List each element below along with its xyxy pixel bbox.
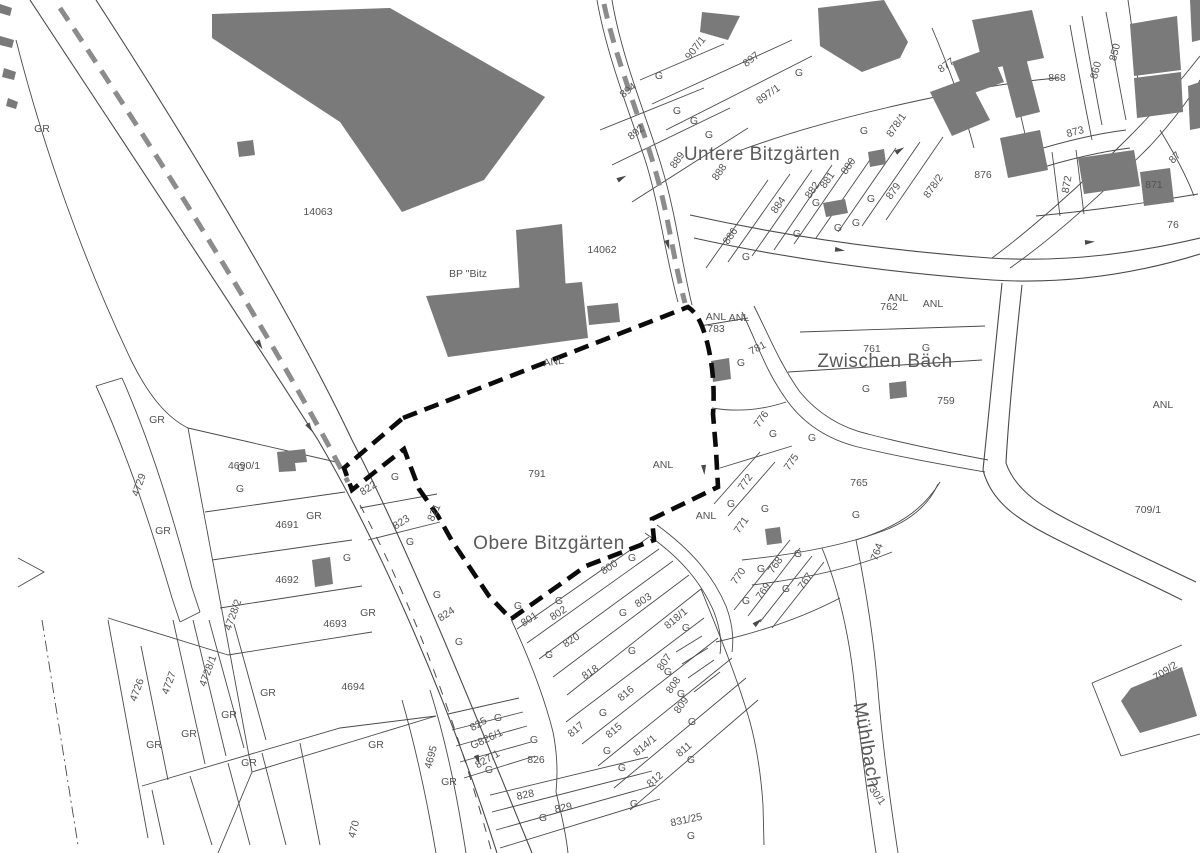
- label-709-1: 709/1: [1135, 504, 1161, 516]
- parcel-line: [209, 620, 244, 748]
- label-g: G: [737, 357, 745, 369]
- label-gr: GR: [149, 414, 165, 426]
- label-g: G: [862, 383, 870, 395]
- label-4728-2: 4728/2: [222, 598, 244, 632]
- road-edge: [1006, 285, 1196, 582]
- label-g: G: [812, 197, 820, 209]
- survey-arrow: [753, 617, 764, 627]
- label-771: 771: [732, 515, 752, 536]
- parcel-line: [96, 386, 180, 622]
- label-880: 880: [839, 156, 859, 177]
- label-g: G: [808, 432, 816, 444]
- label-g: G: [757, 563, 765, 575]
- label-gr: GR: [34, 123, 50, 135]
- label-4693: 4693: [323, 618, 347, 630]
- label-g: G: [628, 552, 636, 564]
- label-anl: ANL: [543, 355, 565, 370]
- parcel-line-dashed: [42, 620, 78, 845]
- parcel-line: [1070, 25, 1092, 140]
- building: [765, 527, 782, 545]
- label-g: G: [343, 552, 351, 564]
- building: [1188, 82, 1200, 130]
- parcel-line: [742, 484, 938, 560]
- cadastral-map: BP "Bitz GR14063140: [0, 0, 1200, 853]
- survey-arrow: [701, 465, 707, 475]
- label-783: 783: [707, 323, 725, 335]
- label-76: 76: [1167, 219, 1179, 231]
- label-772: 772: [736, 472, 756, 493]
- label-820: 820: [561, 631, 582, 651]
- parcel-line: [657, 525, 733, 652]
- parcel-line: [452, 712, 523, 730]
- parcel-line: [1121, 734, 1200, 756]
- parcel-line: [676, 636, 702, 652]
- labels-under-buildings: BP "Bitz: [449, 268, 487, 280]
- label-g: G: [539, 812, 547, 824]
- building: [823, 199, 848, 217]
- label-anl: ANL: [706, 311, 727, 323]
- label-gr: GR: [221, 709, 237, 721]
- label-894: 894: [618, 80, 639, 100]
- label-g: G: [673, 105, 681, 117]
- parcel-line: [180, 612, 200, 622]
- building: [1130, 16, 1181, 76]
- label-817: 817: [566, 719, 587, 740]
- parcel-line: [141, 646, 168, 780]
- label-878-1: 878/1: [884, 111, 909, 140]
- parcel-line: [193, 620, 226, 756]
- label-g: G: [514, 600, 522, 612]
- label-g: G: [687, 830, 695, 842]
- label-g: G: [761, 503, 769, 515]
- label-g: G: [618, 762, 626, 774]
- building: [889, 381, 907, 399]
- survey-arrow: [835, 247, 846, 253]
- label-14062: 14062: [587, 244, 616, 256]
- parcel-line: [772, 562, 824, 628]
- label-762: 762: [880, 301, 898, 313]
- label-759: 759: [937, 395, 955, 407]
- label-4727: 4727: [160, 670, 179, 696]
- parcel-line: [205, 492, 345, 512]
- label-907-1: 907/1: [683, 34, 709, 62]
- building: [818, 0, 908, 72]
- label-g: G: [619, 607, 627, 619]
- label-768: 768: [766, 555, 786, 576]
- label-850: 850: [1107, 42, 1123, 62]
- survey-arrow: [616, 173, 627, 182]
- label-g: G: [852, 509, 860, 521]
- label-4728-1: 4728/1: [197, 654, 219, 688]
- label-gr: GR: [241, 757, 257, 769]
- label-4692: 4692: [275, 574, 299, 586]
- parcel-line: [448, 698, 519, 714]
- parcel-line: [701, 589, 764, 845]
- building: [868, 149, 886, 167]
- label-g: G: [727, 498, 735, 510]
- parcel-line: [234, 624, 266, 740]
- label-g: G: [682, 622, 690, 634]
- label-g: G: [793, 228, 801, 240]
- label-gr: GR: [181, 728, 197, 740]
- label-g: G: [545, 649, 553, 661]
- label-767: 767: [796, 571, 816, 592]
- building: [212, 8, 545, 212]
- label-g: G: [852, 217, 860, 229]
- label-anl: ANL: [1153, 399, 1174, 411]
- label-gr: GR: [368, 739, 384, 751]
- parcel-line: [228, 632, 372, 655]
- label-gr: GR: [441, 776, 457, 788]
- building: [1000, 130, 1048, 178]
- label-g: G: [630, 798, 638, 810]
- parcel-line: [300, 743, 320, 845]
- label-anl: ANL: [696, 510, 717, 522]
- label-g: G: [705, 129, 713, 141]
- parcel-line: [694, 672, 720, 692]
- building: [587, 303, 620, 325]
- road-edge: [983, 283, 1182, 600]
- label-g: G: [455, 636, 463, 648]
- building-edge-mark: [6, 98, 18, 109]
- parcel-line: [188, 428, 252, 772]
- label-gr: GR: [360, 607, 376, 619]
- survey-arrow: [894, 145, 905, 155]
- parcel-line: [142, 716, 436, 786]
- label-877: 877: [936, 56, 957, 76]
- label-g: G: [742, 595, 750, 607]
- label-821: 821: [425, 502, 443, 523]
- building-edge-mark: [2, 68, 16, 80]
- label-800: 800: [599, 558, 620, 578]
- parcel-line: [582, 638, 718, 744]
- label-gr: GR: [306, 510, 322, 522]
- label-g: G: [742, 251, 750, 263]
- parcel-line: [152, 790, 164, 845]
- label-g: G: [391, 471, 399, 483]
- label-892: 892: [626, 122, 647, 142]
- parcel-line: [600, 88, 704, 130]
- parcel-line: [712, 402, 786, 410]
- parcel-line: [632, 128, 748, 202]
- label-470: 470: [346, 819, 362, 839]
- parcel-line: [212, 540, 352, 560]
- label-g: G: [794, 548, 802, 560]
- label-776: 776: [752, 409, 772, 430]
- label-g: G: [406, 536, 414, 548]
- label-g: G: [628, 645, 636, 657]
- label-775: 775: [782, 452, 802, 473]
- label-825: 825: [468, 715, 489, 734]
- label-untere-bitzgaerten: Untere Bitzgärten: [684, 144, 840, 165]
- parcel-line: [728, 174, 790, 262]
- label-anl: ANL: [653, 459, 674, 471]
- label-4695: 4695: [422, 744, 440, 770]
- label-814-1: 814/1: [631, 733, 659, 759]
- parcel-line: [16, 40, 188, 428]
- parcel-line: [228, 763, 250, 845]
- label-14063: 14063: [303, 206, 332, 218]
- label-g: G: [485, 764, 493, 776]
- label-g: G: [664, 666, 672, 678]
- label-g: G: [237, 462, 245, 474]
- parcel-line: [666, 56, 812, 130]
- label-g: G: [655, 70, 663, 82]
- building: [312, 557, 333, 587]
- label-zwischen-baech: Zwischen Bäch: [817, 351, 952, 372]
- parcel-line: [1106, 12, 1126, 120]
- label-822: 822: [358, 479, 379, 499]
- label-muehlbach: Mühlbach: [849, 701, 885, 790]
- building-edge-mark: [0, 4, 12, 16]
- label-g: G: [769, 428, 777, 440]
- building: [1190, 0, 1200, 42]
- cadastral-map-page: BP "Bitz GR14063140: [0, 0, 1200, 853]
- building: [277, 449, 307, 472]
- label-anl: ANL: [729, 312, 750, 324]
- parcel-line: [800, 326, 985, 332]
- label-769: 769: [754, 581, 774, 602]
- label-g: G: [834, 222, 842, 234]
- label-g: G: [433, 589, 441, 601]
- building: [516, 224, 566, 298]
- label-gr: GR: [155, 525, 171, 537]
- parcel-line: [190, 776, 212, 845]
- wall-dash-line: [604, 4, 685, 303]
- building: [1134, 72, 1183, 118]
- building: [237, 140, 255, 157]
- building: [700, 12, 740, 40]
- label-897: 897: [741, 49, 762, 69]
- label-815: 815: [604, 720, 625, 741]
- label-826: 826: [527, 754, 545, 766]
- label-87: 87: [1167, 149, 1184, 166]
- label-g: G: [690, 115, 698, 127]
- building: [426, 282, 588, 357]
- building: [1078, 150, 1140, 194]
- label-770: 770: [729, 566, 749, 587]
- label-g: G: [494, 712, 502, 724]
- label-878-2: 878/2: [921, 172, 946, 201]
- label-809: 809: [672, 695, 692, 716]
- parcel-line: [262, 753, 286, 845]
- label-gr: GR: [146, 739, 162, 751]
- parcel-line: [402, 700, 436, 853]
- label-868: 868: [1048, 72, 1066, 84]
- label-829: 829: [554, 800, 574, 815]
- label-g: G: [530, 734, 538, 746]
- label-803: 803: [633, 591, 654, 611]
- label-4726: 4726: [128, 677, 147, 703]
- label-765: 765: [850, 477, 868, 489]
- label-816: 816: [616, 683, 637, 704]
- label-781: 781: [747, 339, 768, 358]
- parcel-line: [511, 619, 557, 792]
- label-g: G: [688, 716, 696, 728]
- lane-edge: [754, 306, 988, 460]
- label-g: G: [860, 125, 868, 137]
- label-818: 818: [580, 663, 601, 683]
- stream-bank: [597, 0, 678, 302]
- label-g: G: [236, 483, 244, 495]
- label-g: G: [795, 67, 803, 79]
- label-g: G: [603, 745, 611, 757]
- label-831-25: 831/25: [669, 811, 703, 829]
- label-g: G: [782, 583, 790, 595]
- label-g: G: [555, 595, 563, 607]
- label-g: G: [867, 193, 875, 205]
- parcel-line-network: [16, 0, 1200, 853]
- parcel-line: [173, 620, 205, 764]
- parcel-line: [1036, 194, 1198, 216]
- label-4694: 4694: [341, 681, 365, 693]
- label-obere-bitzgaerten: Obere Bitzgärten: [473, 533, 625, 554]
- parcel-line: [640, 44, 724, 80]
- parcel-791-site: 791: [528, 468, 546, 480]
- label-884: 884: [769, 195, 789, 216]
- label-anl: ANL: [923, 298, 944, 310]
- label-824: 824: [436, 605, 457, 625]
- label-g: G: [599, 707, 607, 719]
- parcel-line: [218, 772, 252, 853]
- parcel-line: [1092, 683, 1121, 756]
- building-edge-mark: [0, 36, 14, 48]
- parcel-line: [18, 558, 44, 587]
- parcel-line: [752, 170, 812, 256]
- road-edge: [694, 238, 1200, 281]
- label-876: 876: [974, 169, 992, 181]
- label-764: 764: [869, 542, 886, 563]
- building: [972, 10, 1044, 70]
- stream-bank: [856, 482, 940, 853]
- parcel-line: [706, 180, 768, 268]
- label-871: 871: [1145, 179, 1163, 191]
- label-g: G: [687, 754, 695, 766]
- buildings: [0, 0, 1200, 733]
- parcel-line: [96, 378, 122, 386]
- label-4691: 4691: [275, 519, 299, 531]
- survey-arrow: [1085, 239, 1095, 245]
- label-bp-bitzgaerten: BP "Bitz: [449, 268, 487, 280]
- label-897-1: 897/1: [754, 82, 783, 107]
- building: [1002, 58, 1040, 118]
- label-gr: GR: [260, 687, 276, 699]
- label-828: 828: [516, 787, 536, 802]
